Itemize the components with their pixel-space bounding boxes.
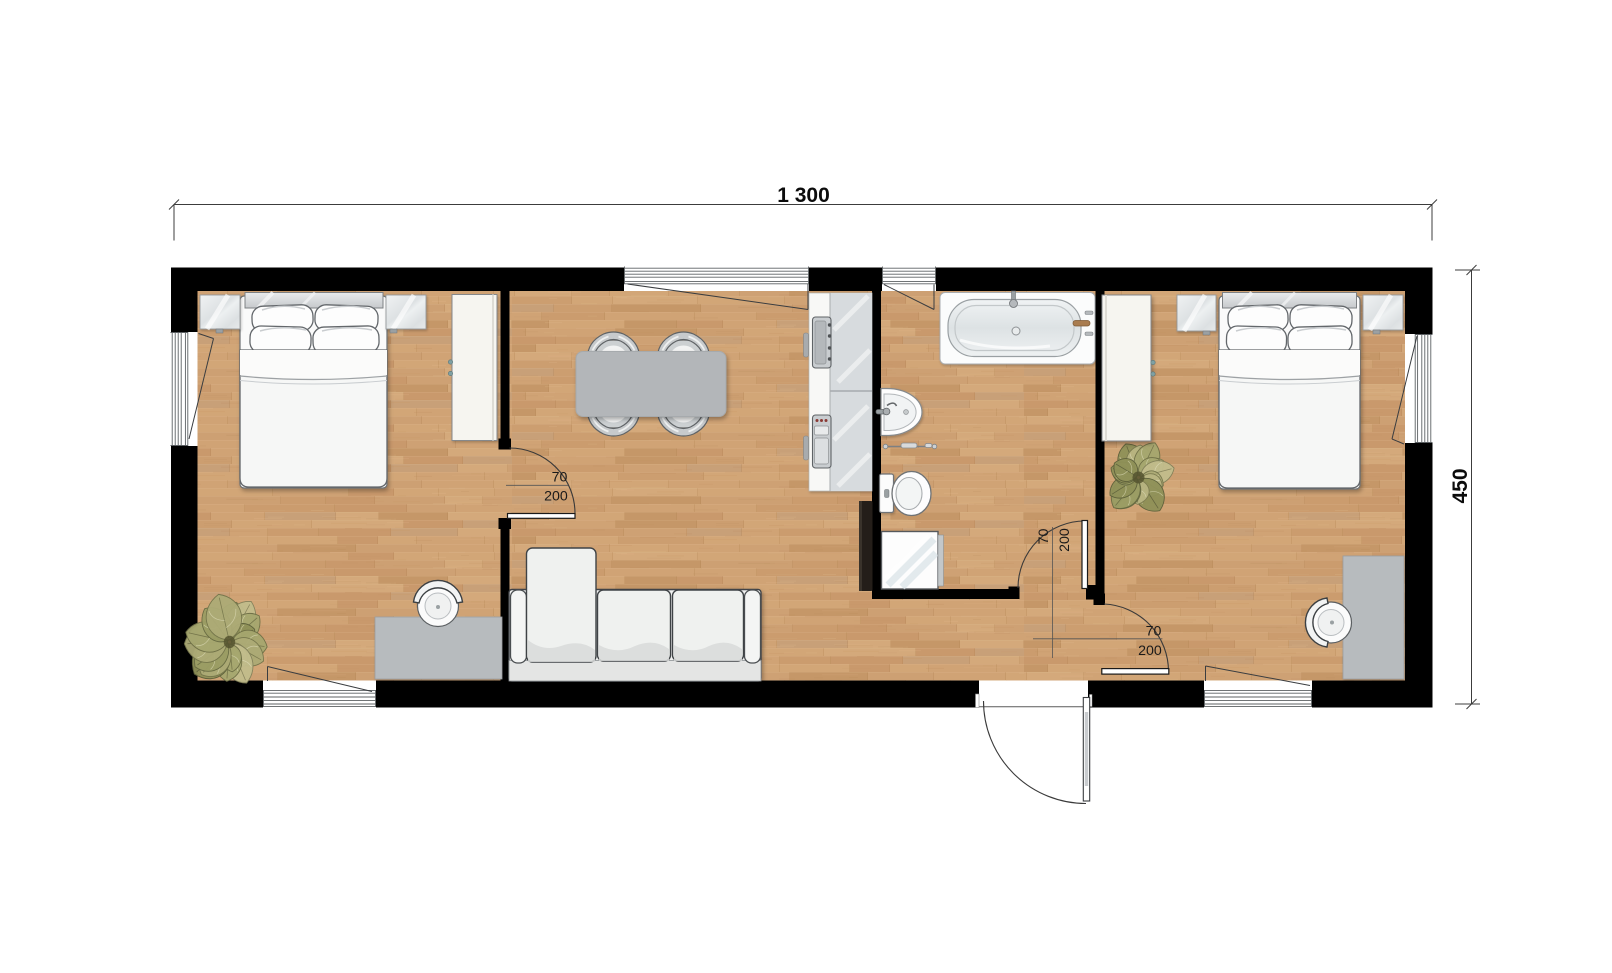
svg-text:70: 70	[1036, 529, 1052, 545]
svg-text:200: 200	[544, 488, 568, 504]
svg-text:70: 70	[552, 470, 568, 486]
svg-text:450: 450	[1449, 468, 1472, 503]
svg-text:1 300: 1 300	[777, 184, 830, 207]
svg-text:200: 200	[1057, 528, 1073, 552]
svg-text:70: 70	[1146, 624, 1162, 640]
svg-text:200: 200	[1138, 643, 1162, 659]
